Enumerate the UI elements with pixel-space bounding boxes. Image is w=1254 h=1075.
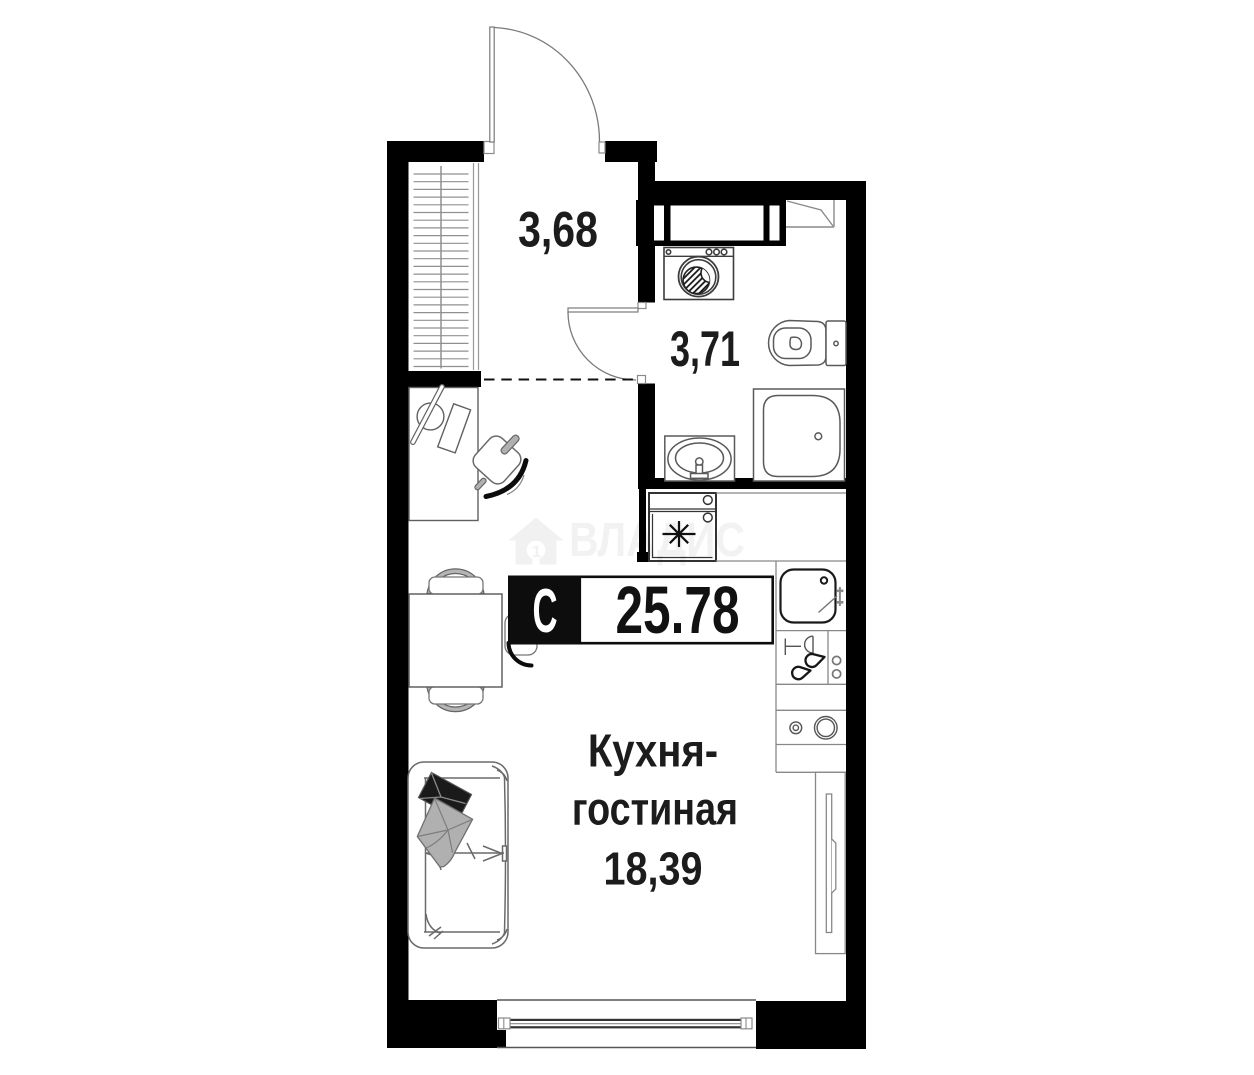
svg-text:гостиная: гостиная — [572, 783, 738, 834]
svg-text:25.78: 25.78 — [615, 574, 739, 648]
svg-text:1: 1 — [532, 542, 541, 561]
svg-text:ВЛАДИС: ВЛАДИС — [569, 514, 745, 567]
svg-text:3,71: 3,71 — [670, 322, 740, 377]
svg-text:3,68: 3,68 — [518, 202, 598, 258]
svg-text:Кухня-: Кухня- — [588, 726, 718, 777]
svg-text:С: С — [532, 576, 557, 645]
svg-text:18,39: 18,39 — [604, 844, 703, 895]
